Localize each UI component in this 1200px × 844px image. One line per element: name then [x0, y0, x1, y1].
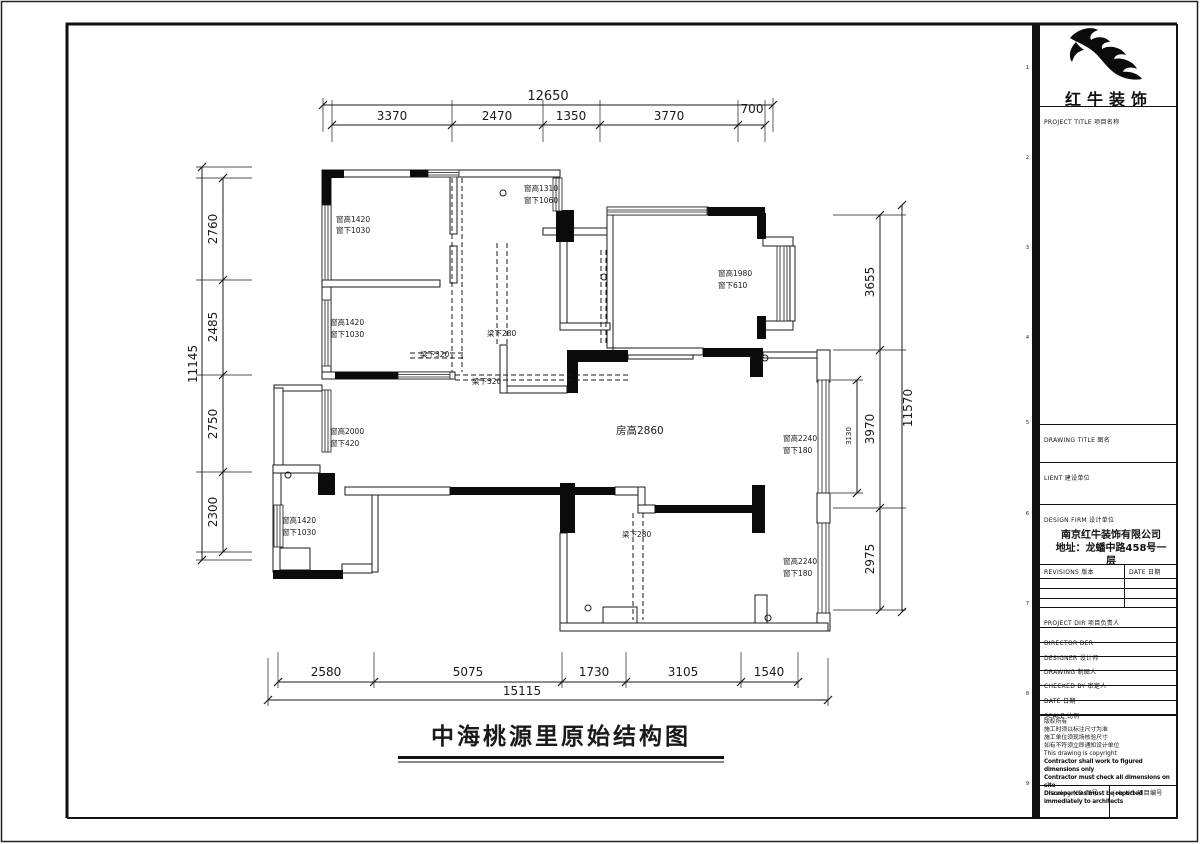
sheet-frame: [2, 2, 1198, 842]
grid-ref: 3: [1026, 245, 1029, 251]
plan-door-circles: [285, 190, 771, 621]
window-symbol: [818, 380, 829, 493]
grid-ref: 8: [1026, 691, 1029, 697]
notes-box: 版权所有 施工时须以标注尺寸为准 施工单位须现场核验尺寸 如有不符须立即通知设计…: [1040, 716, 1178, 786]
drawing-by-box: DRAWING 制图人: [1040, 657, 1178, 671]
revisions-label: REVISIONS 版本: [1044, 567, 1094, 576]
window-symbol: [777, 246, 787, 321]
grid-ref: 1: [1026, 65, 1029, 71]
window-symbol: [322, 205, 331, 280]
window-note: 窗高1420: [330, 317, 364, 327]
dim-left-seg: 2750: [206, 409, 220, 440]
grid-ref: 9: [1026, 781, 1029, 787]
numbers-divider: [1109, 786, 1110, 818]
dim-bottom-seg: 2580: [311, 665, 342, 679]
client-label: LIENT 建设单位: [1044, 475, 1090, 482]
window-symbol: [274, 505, 283, 547]
grid-ref: 4: [1026, 335, 1029, 341]
revisions-divider: [1124, 565, 1125, 607]
plan-annotations: 窗高1420 窗下1030 窗高1310 窗下1060 窗高1420 窗下103…: [282, 183, 817, 578]
design-firm-box: DESIGN FIRM 设计单位 南京红牛装饰有限公司 地址：龙蟠中路458号一…: [1040, 505, 1178, 565]
project-dir-box: PROJECT DIR 项目负责人: [1040, 608, 1178, 628]
window-symbol: [553, 178, 562, 211]
firm-name: 南京红牛装饰有限公司: [1044, 529, 1178, 542]
revisions-date-label: DATE 日期: [1129, 567, 1161, 576]
dim-left-seg: 2760: [206, 214, 220, 245]
beam-note: 梁下320: [420, 350, 450, 359]
project-title-label: PROJECT TITLE 项目名称: [1044, 119, 1119, 126]
window-note: 窗下1030: [330, 329, 364, 339]
window-symbol: [818, 523, 829, 613]
project-title-box: PROJECT TITLE 项目名称: [1040, 107, 1178, 425]
note-line: 版权所有: [1044, 719, 1178, 727]
dim-top-seg: 700: [741, 102, 764, 116]
window-note: 窗下180: [783, 568, 813, 578]
window-note: 窗高2240: [783, 433, 817, 443]
note-line: 施工单位须现场核验尺寸: [1044, 735, 1178, 743]
title-block: 红牛装饰 PROJECT TITLE 项目名称 DRAWING TITLE 图名…: [1039, 24, 1178, 818]
dim-bottom-seg: 5075: [453, 665, 484, 679]
client-box: LIENT 建设单位: [1040, 463, 1178, 505]
window-note: 窗下180: [783, 445, 813, 455]
window-note: 窗下1030: [336, 225, 370, 235]
window-note: 窗高2000: [330, 426, 364, 436]
dim-bottom-seg: 3105: [668, 665, 699, 679]
dim-top-seg: 3770: [654, 109, 685, 123]
window-note: 窗高2240: [783, 556, 817, 566]
firm-address: 地址：龙蟠中路458号一: [1044, 542, 1178, 555]
drawing-no-label: Drawing NO 图号: [1044, 788, 1098, 797]
plan-walls-thin: [273, 170, 830, 631]
revisions-box: REVISIONS 版本 DATE 日期: [1040, 565, 1178, 608]
dim-right-seg: 3655: [863, 267, 877, 298]
drawing-sheet: 1 2 3 4 5 6 7 8 9: [0, 0, 1200, 844]
dim-left-total: 11145: [186, 345, 200, 383]
window-note: 窗高1420: [336, 214, 370, 224]
note-line: 施工时须以标注尺寸为准: [1044, 727, 1178, 735]
window-note: 窗下610: [718, 280, 748, 290]
note-line: Contractor shall work to figured dimensi…: [1044, 759, 1178, 775]
logo-box: 红牛装饰: [1040, 24, 1178, 107]
title-underline: [398, 756, 724, 759]
window-note: 窗高1310: [524, 183, 558, 193]
grid-ref: 2: [1026, 155, 1029, 161]
checked-by-box: CHECKED BY 审定人: [1040, 671, 1178, 686]
window-symbol: [607, 207, 707, 215]
dim-left-seg: 2485: [206, 312, 220, 343]
beam-note: 梁下280: [487, 329, 517, 338]
grid-ref: 6: [1026, 511, 1029, 517]
dim-left-seg: 2300: [206, 497, 220, 528]
window-symbol: [398, 372, 450, 379]
dim-top-seg: 1350: [556, 109, 587, 123]
window-note: 窗高1420: [282, 515, 316, 525]
window-note: 窗下1060: [524, 195, 558, 205]
drawing-title-text: 中海桃源里原始结构图: [431, 723, 691, 750]
redniu-logo-icon: [1040, 24, 1176, 82]
beam-note: 梁下280: [622, 530, 652, 539]
drawing-title-group: 中海桃源里原始结构图: [398, 723, 724, 762]
note-line: 如有不符须立即通知设计单位: [1044, 743, 1178, 751]
window-symbol: [428, 170, 459, 177]
dim-right-seg: 2975: [863, 544, 877, 575]
project-dir-label: PROJECT DIR 项目负责人: [1044, 620, 1119, 627]
grid-ref: 7: [1026, 601, 1029, 607]
dim-bottom-total: 15115: [503, 684, 541, 698]
job-no-label: Job NO 项目编号: [1113, 788, 1163, 797]
drawing-title-box: DRAWING TITLE 图名: [1040, 425, 1178, 463]
dim-right-total: 11570: [901, 389, 915, 427]
dim-bottom-seg: 1540: [754, 665, 785, 679]
dim-top-total: 12650: [527, 89, 568, 104]
grid-ref: 5: [1026, 420, 1029, 426]
window-note: 窗下1030: [282, 527, 316, 537]
dim-top-seg: 3370: [377, 109, 408, 123]
date-box: DATE 日期: [1040, 686, 1178, 701]
dim-right-seg: 3970: [863, 414, 877, 445]
room-height-note: 房高2860: [616, 424, 664, 437]
window-note: 窗高1980: [718, 268, 752, 278]
designer-box: DESIGNER 设计师: [1040, 643, 1178, 657]
numbers-box: Drawing NO 图号 Job NO 项目编号: [1040, 786, 1178, 818]
dim-right-inner: 3130: [845, 427, 853, 445]
grid-ref-numbers: 1 2 3 4 5 6 7 8 9: [1026, 65, 1029, 787]
dim-top-seg: 2470: [482, 109, 513, 123]
drawing-title-label: DRAWING TITLE 图名: [1044, 437, 1110, 444]
design-firm-label: DESIGN FIRM 设计单位: [1044, 517, 1114, 524]
director-box: DIRECTOR DER: [1040, 628, 1178, 643]
beam-note: 梁下320: [472, 377, 502, 386]
floor-plan-canvas: 1 2 3 4 5 6 7 8 9: [0, 0, 1200, 844]
window-note: 窗下420: [330, 438, 360, 448]
note-line: This drawing is copyright: [1044, 751, 1178, 759]
dim-bottom-seg: 1730: [579, 665, 610, 679]
scale-box: SCALE 比例: [1040, 701, 1178, 716]
